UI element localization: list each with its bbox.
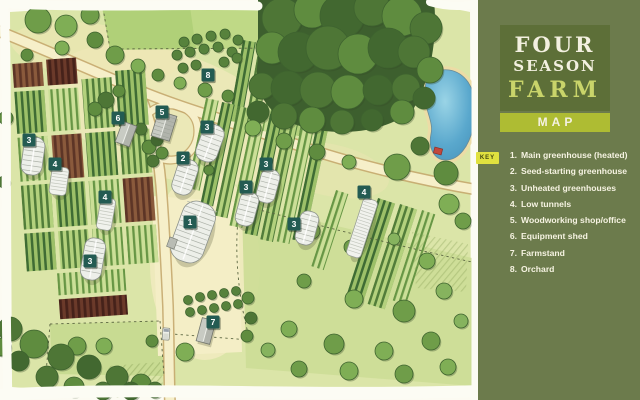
svg-text:1: 1 [188,217,193,227]
svg-text:2: 2 [181,153,186,163]
map-marker-1: 1 [184,216,198,231]
key-item-label: Main greenhouse (heated) [521,151,627,160]
map-label: MAP [500,113,610,132]
svg-text:3: 3 [264,159,269,169]
svg-text:4: 4 [103,192,108,202]
map-marker-3: 3 [288,218,302,233]
map-marker-3: 3 [240,181,254,196]
key-item-label: Woodworking shop/office [521,216,626,225]
key-item: 7.Farmstand [508,249,627,258]
key-item-label: Unheated greenhouses [521,184,616,193]
key-item-label: Orchard [521,265,554,274]
page: 123333334445678 FOUR SEASON FARM MAP 1.M… [0,0,640,400]
key-item: 3.Unheated greenhouses [508,184,627,193]
key-item: 8.Orchard [508,265,627,274]
map-marker-4: 4 [49,158,63,173]
svg-text:3: 3 [205,122,210,132]
svg-text:4: 4 [362,187,367,197]
svg-text:4: 4 [53,159,58,169]
key-item: 6.Equipment shed [508,232,627,241]
key-item: 5.Woodworking shop/office [508,216,627,225]
map-marker-8: 8 [202,69,216,84]
key-item-number: 5. [508,216,517,225]
sidebar: FOUR SEASON FARM MAP 1.Main greenhouse (… [478,0,640,400]
key-item-label: Equipment shed [521,232,588,241]
svg-text:6: 6 [116,113,121,123]
farm-map-illustration: 123333334445678 [0,0,478,400]
svg-text:7: 7 [211,317,216,327]
truck [162,328,170,340]
map-marker-3: 3 [260,158,274,173]
key-item: 2.Seed-starting greenhouse [508,167,627,176]
map-marker-4: 4 [99,191,113,206]
map-marker-2: 2 [177,152,191,167]
key-item-label: Farmstand [521,249,565,258]
svg-text:5: 5 [160,107,165,117]
key-tag: KEY [476,152,499,164]
key-item-number: 2. [508,167,517,176]
svg-text:8: 8 [206,70,211,80]
key-item-label: Low tunnels [521,200,571,209]
key-item: 1.Main greenhouse (heated) [508,151,627,160]
map-marker-6: 6 [112,112,126,127]
key-item-number: 4. [508,200,517,209]
map-key-list: 1.Main greenhouse (heated) 2.Seed-starti… [508,151,627,281]
svg-text:3: 3 [27,135,32,145]
svg-text:3: 3 [292,219,297,229]
key-item-label: Seed-starting greenhouse [521,167,627,176]
farm-logo: FOUR SEASON FARM [500,25,610,111]
svg-text:3: 3 [88,256,93,266]
key-item-number: 7. [508,249,517,258]
logo-line-farm: FARM [500,77,610,103]
logo-line-season: SEASON [500,56,610,77]
map-marker-4: 4 [358,186,372,201]
key-item-number: 3. [508,184,517,193]
map-marker-3: 3 [84,255,98,270]
key-item-number: 6. [508,232,517,241]
map-marker-3: 3 [201,121,215,136]
map-marker-3: 3 [23,134,37,149]
key-item: 4.Low tunnels [508,200,627,209]
key-item-number: 1. [508,151,517,160]
map-marker-5: 5 [156,106,170,121]
map-marker-7: 7 [207,316,221,331]
svg-text:3: 3 [244,182,249,192]
key-item-number: 8. [508,265,517,274]
logo-line-four: FOUR [500,33,610,56]
